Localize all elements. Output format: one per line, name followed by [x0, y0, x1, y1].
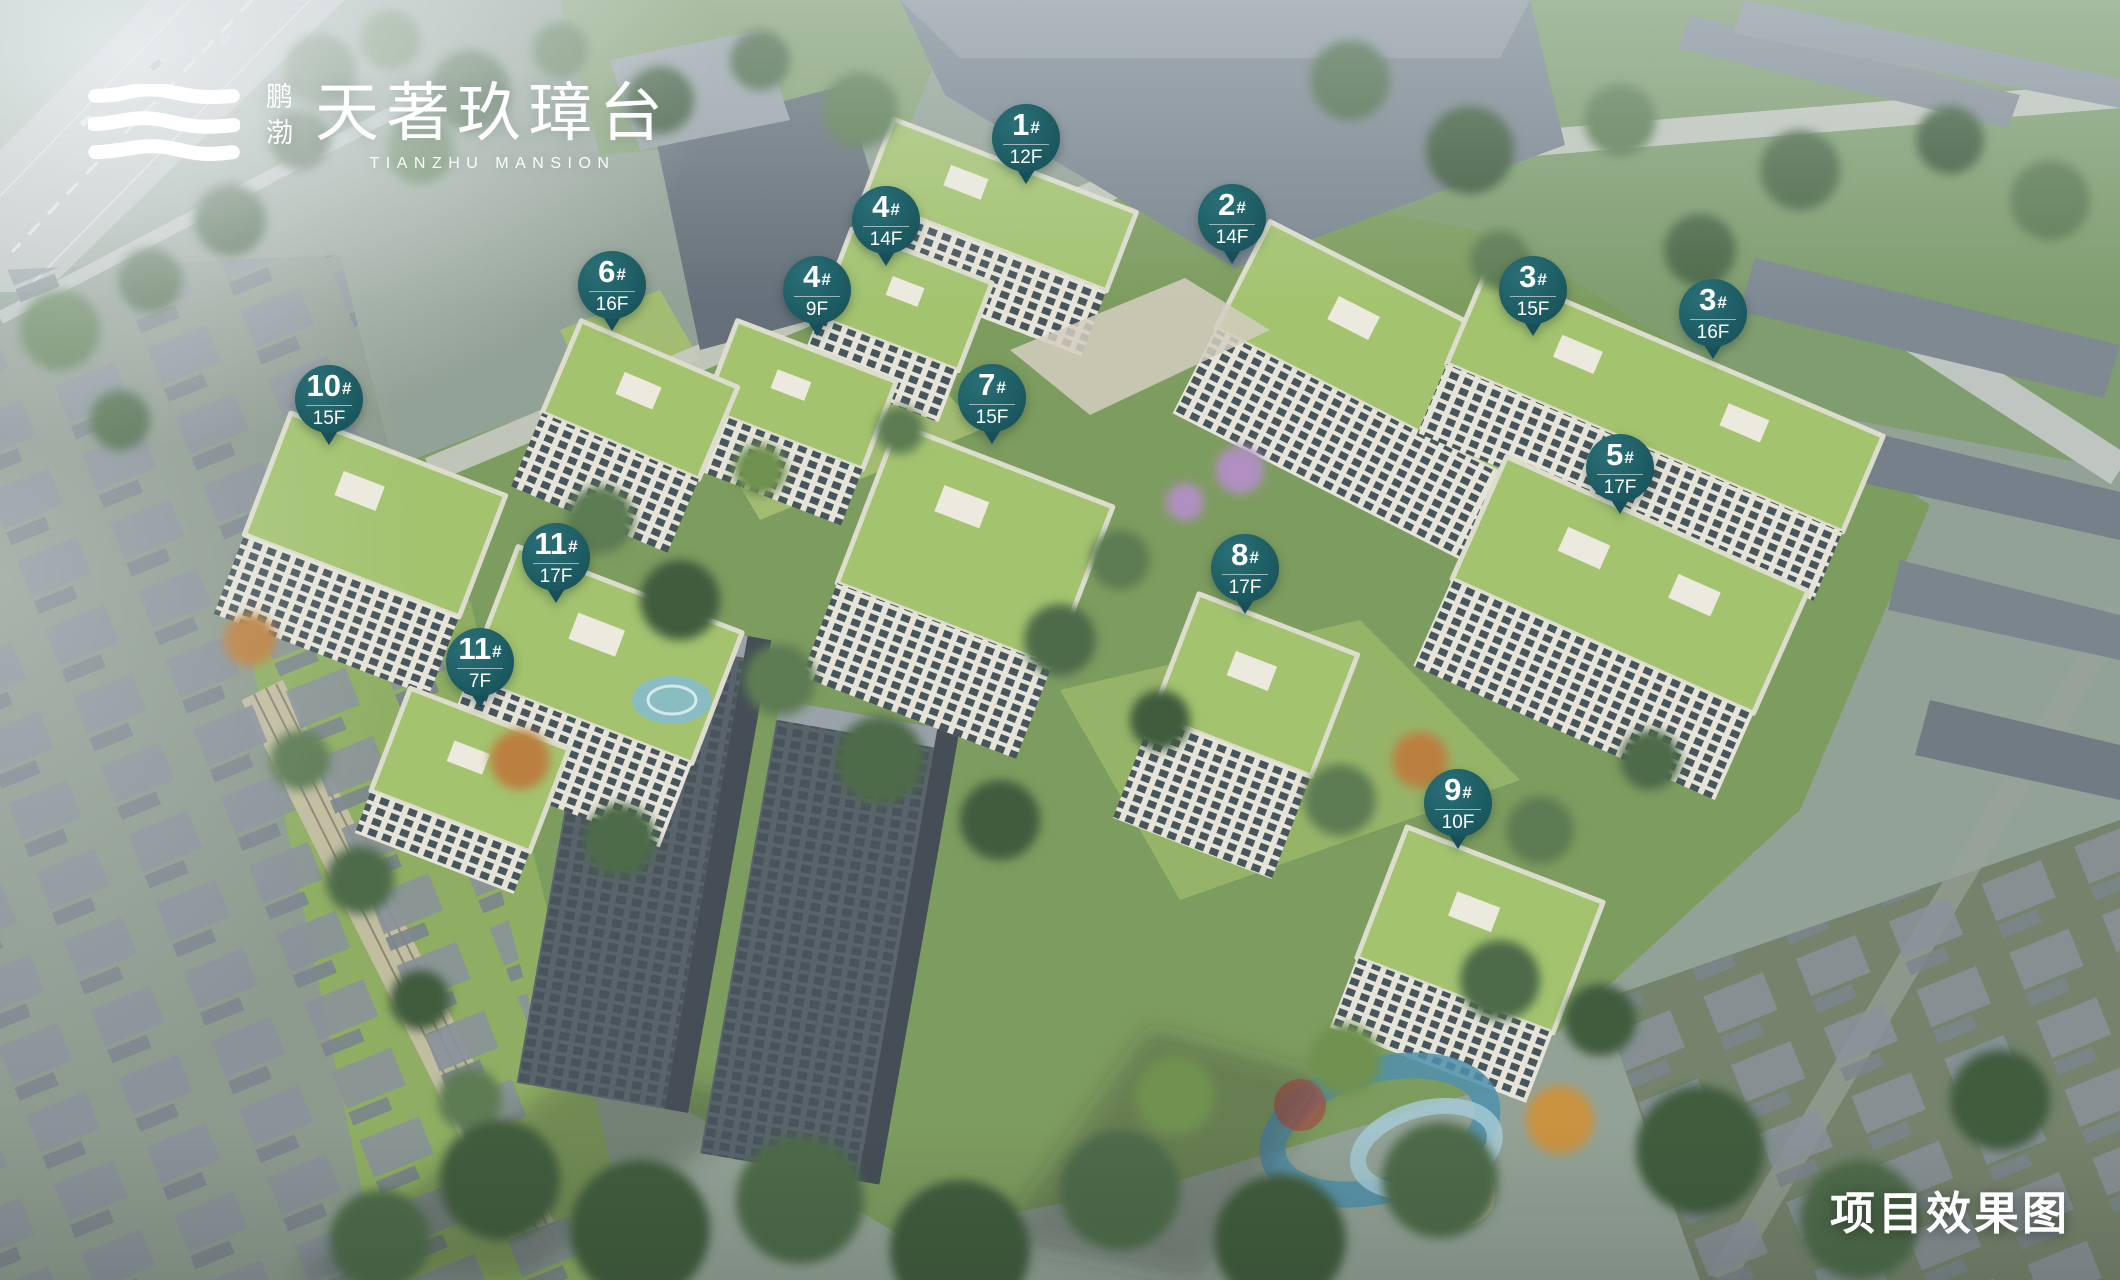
- marker-divider: [1435, 809, 1481, 810]
- marker-floor-count: 17F: [1229, 578, 1262, 597]
- marker-floor-count: 10F: [1442, 813, 1475, 832]
- marker-divider: [533, 563, 579, 564]
- project-name-cn: 天著玖璋台: [315, 78, 670, 148]
- project-rendering-image: 鹏渤 天著玖璋台 TIANZHU MANSION 1# 12F 4# 14F 2…: [0, 0, 2120, 1280]
- building-marker-11-7F: 11# 7F: [442, 628, 518, 696]
- marker-building-number: 11#: [534, 528, 577, 559]
- marker-building-number: 11#: [458, 633, 501, 664]
- caption-project-rendering: 项目效果图: [1830, 1177, 2070, 1242]
- marker-divider: [794, 296, 840, 297]
- marker-floor-count: 15F: [976, 408, 1009, 427]
- marker-balloon: 10# 15F: [295, 365, 363, 433]
- marker-building-number: 1#: [1012, 109, 1040, 140]
- marker-balloon: 2# 14F: [1198, 184, 1266, 252]
- marker-divider: [863, 226, 909, 227]
- marker-building-number: 2#: [1218, 189, 1246, 220]
- building-marker-9-10F: 9# 10F: [1420, 769, 1496, 837]
- marker-divider: [1690, 319, 1736, 320]
- marker-balloon: 3# 16F: [1679, 279, 1747, 347]
- aerial-render-scene: [0, 0, 2120, 1280]
- marker-building-number: 5#: [1606, 439, 1634, 470]
- building-marker-6-16F: 6# 16F: [574, 251, 650, 319]
- marker-floor-count: 7F: [469, 672, 491, 691]
- marker-building-number: 4#: [872, 191, 900, 222]
- marker-floor-count: 16F: [1697, 323, 1730, 342]
- marker-balloon: 6# 16F: [578, 251, 646, 319]
- marker-divider: [1209, 224, 1255, 225]
- marker-building-number: 6#: [598, 256, 626, 287]
- marker-balloon: 11# 17F: [522, 523, 590, 591]
- building-marker-8-17F: 8# 17F: [1207, 534, 1283, 602]
- marker-building-number: 10#: [307, 370, 352, 401]
- building-marker-5-17F: 5# 17F: [1582, 434, 1658, 502]
- marker-divider: [1222, 574, 1268, 575]
- project-name-en: TIANZHU MANSION: [370, 155, 616, 173]
- building-marker-3-16F: 3# 16F: [1675, 279, 1751, 347]
- marker-floor-count: 17F: [540, 567, 573, 586]
- marker-building-number: 8#: [1231, 539, 1259, 570]
- project-name-block: 天著玖璋台 TIANZHU MANSION: [315, 78, 670, 173]
- building-marker-7-15F: 7# 15F: [954, 364, 1030, 432]
- marker-balloon: 11# 7F: [446, 628, 514, 696]
- marker-balloon: 5# 17F: [1586, 434, 1654, 502]
- building-marker-4-9F: 4# 9F: [779, 256, 855, 324]
- marker-floor-count: 14F: [1216, 228, 1249, 247]
- building-marker-11-17F: 11# 17F: [518, 523, 594, 591]
- marker-balloon: 4# 9F: [783, 256, 851, 324]
- marker-building-number: 7#: [978, 369, 1006, 400]
- marker-divider: [969, 404, 1015, 405]
- marker-floor-count: 17F: [1604, 478, 1637, 497]
- marker-balloon: 3# 15F: [1499, 256, 1567, 324]
- brand-logo: 鹏渤 天著玖璋台 TIANZHU MANSION: [88, 78, 670, 173]
- marker-balloon: 8# 17F: [1211, 534, 1279, 602]
- marker-floor-count: 15F: [313, 409, 346, 428]
- building-marker-2-14F: 2# 14F: [1194, 184, 1270, 252]
- marker-floor-count: 12F: [1010, 148, 1043, 167]
- marker-building-number: 4#: [803, 261, 831, 292]
- building-marker-1-12F: 1# 12F: [988, 104, 1064, 172]
- marker-divider: [1510, 296, 1556, 297]
- building-marker-10-15F: 10# 15F: [291, 365, 367, 433]
- marker-floor-count: 15F: [1517, 300, 1550, 319]
- brand-wave-icon: [88, 84, 240, 164]
- marker-balloon: 4# 14F: [852, 186, 920, 254]
- marker-building-number: 3#: [1519, 261, 1547, 292]
- marker-balloon: 9# 10F: [1424, 769, 1492, 837]
- marker-divider: [306, 405, 352, 406]
- building-marker-3-15F: 3# 15F: [1495, 256, 1571, 324]
- marker-divider: [1003, 144, 1049, 145]
- marker-floor-count: 14F: [870, 230, 903, 249]
- marker-divider: [457, 668, 503, 669]
- brand-name-vertical: 鹏渤: [258, 82, 297, 154]
- marker-floor-count: 16F: [596, 295, 629, 314]
- building-marker-4-14F: 4# 14F: [848, 186, 924, 254]
- marker-floor-count: 9F: [806, 300, 828, 319]
- marker-balloon: 7# 15F: [958, 364, 1026, 432]
- marker-divider: [589, 291, 635, 292]
- marker-building-number: 9#: [1444, 774, 1472, 805]
- marker-divider: [1597, 474, 1643, 475]
- marker-balloon: 1# 12F: [992, 104, 1060, 172]
- marker-building-number: 3#: [1699, 284, 1727, 315]
